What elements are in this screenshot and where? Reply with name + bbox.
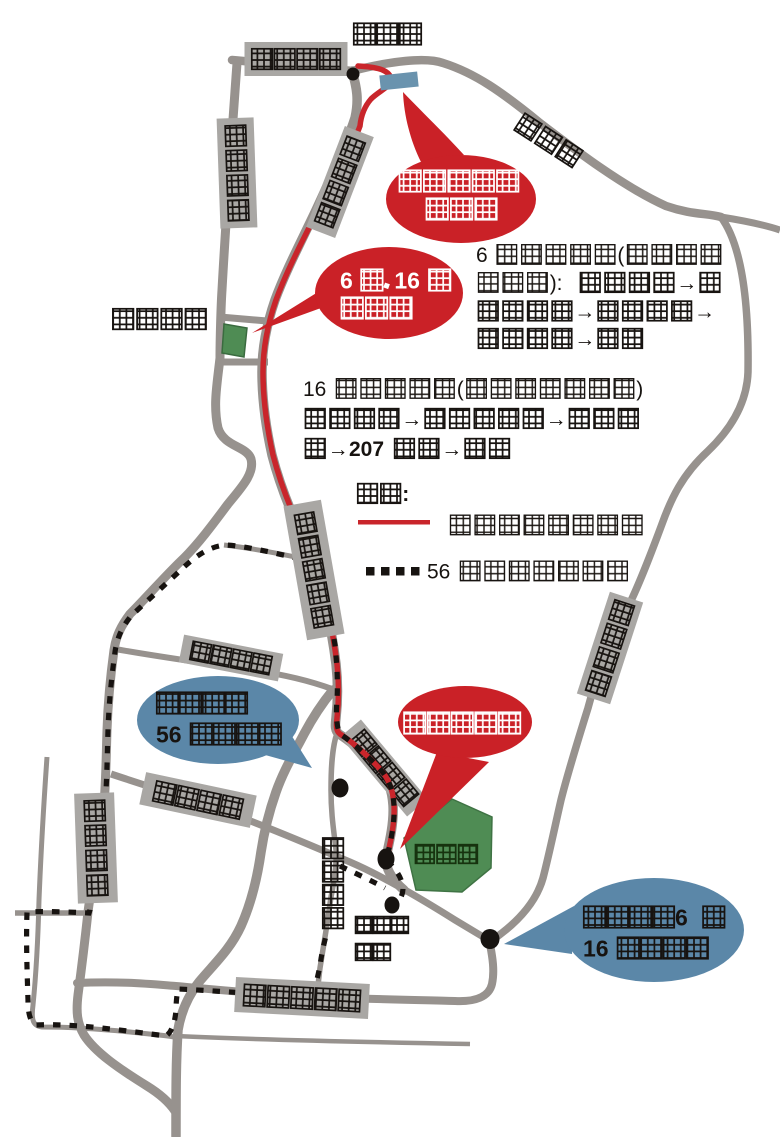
svg-text:→: → — [676, 272, 697, 295]
svg-text:→: → — [441, 438, 462, 461]
svg-text:6: 6 — [675, 904, 688, 930]
svg-text:→: → — [401, 408, 422, 431]
svg-text:→: → — [546, 408, 567, 431]
svg-text:16: 16 — [394, 267, 420, 293]
svg-text:6: 6 — [476, 244, 488, 267]
svg-text:207: 207 — [349, 438, 384, 461]
svg-text:(: ( — [457, 378, 464, 401]
svg-text:56: 56 — [427, 561, 450, 584]
svg-text:): ) — [636, 378, 643, 401]
svg-text:→: → — [574, 301, 595, 324]
svg-text:16: 16 — [303, 378, 326, 401]
svg-text:→: → — [574, 328, 595, 351]
svg-text:(: ( — [617, 244, 624, 267]
svg-text::: : — [402, 483, 409, 506]
svg-text:→: → — [328, 438, 349, 461]
svg-text:6: 6 — [340, 267, 353, 293]
svg-text:):: ): — [550, 272, 563, 295]
svg-text:→: → — [694, 301, 715, 324]
svg-text:56: 56 — [156, 721, 182, 747]
svg-text:16: 16 — [583, 935, 609, 961]
